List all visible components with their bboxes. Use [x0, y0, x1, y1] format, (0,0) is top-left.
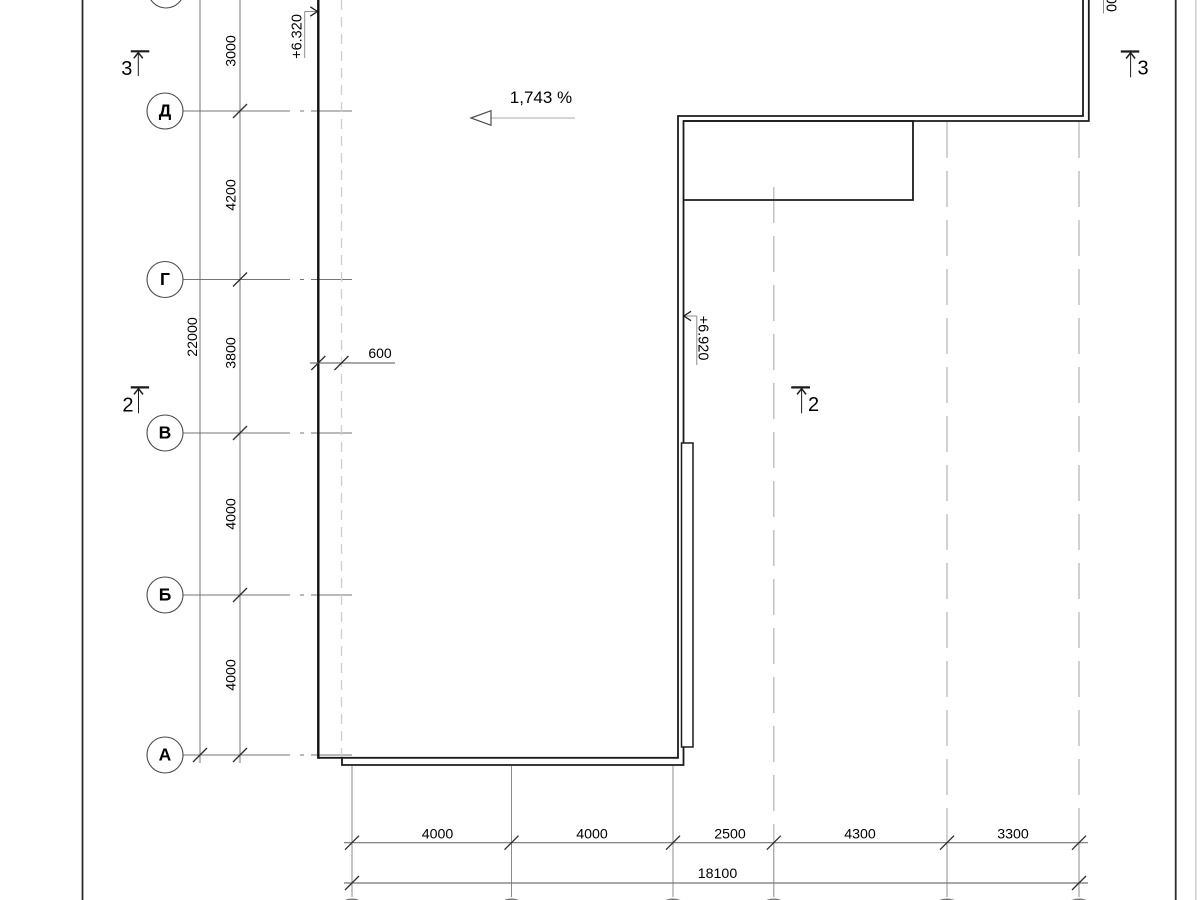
svg-text:Д: Д	[159, 101, 172, 121]
svg-text:18100: 18100	[698, 866, 738, 882]
svg-text:Г: Г	[160, 269, 170, 289]
svg-text:4000: 4000	[224, 659, 240, 691]
svg-text:22000: 22000	[185, 317, 201, 357]
svg-text:4000: 4000	[422, 827, 454, 843]
svg-text:4000: 4000	[224, 498, 240, 530]
svg-text:2500: 2500	[714, 827, 746, 843]
svg-text:А: А	[159, 745, 172, 765]
svg-text:+6.320: +6.320	[290, 14, 306, 59]
svg-text:Б: Б	[159, 585, 172, 605]
svg-text:2: 2	[808, 394, 819, 416]
svg-text:4200: 4200	[224, 179, 240, 211]
svg-text:600: 600	[368, 345, 392, 361]
svg-text:+8.000: +8.000	[1103, 0, 1119, 12]
svg-text:3800: 3800	[224, 337, 240, 369]
svg-text:4300: 4300	[844, 827, 876, 843]
svg-text:+6.920: +6.920	[695, 316, 711, 361]
svg-text:В: В	[159, 423, 172, 443]
svg-text:3: 3	[121, 58, 132, 80]
svg-text:4000: 4000	[576, 827, 608, 843]
svg-text:3300: 3300	[997, 827, 1029, 843]
svg-text:3000: 3000	[224, 35, 240, 67]
svg-text:3: 3	[1137, 58, 1148, 80]
svg-text:1,743 %: 1,743 %	[510, 88, 572, 107]
svg-text:2: 2	[122, 395, 133, 417]
